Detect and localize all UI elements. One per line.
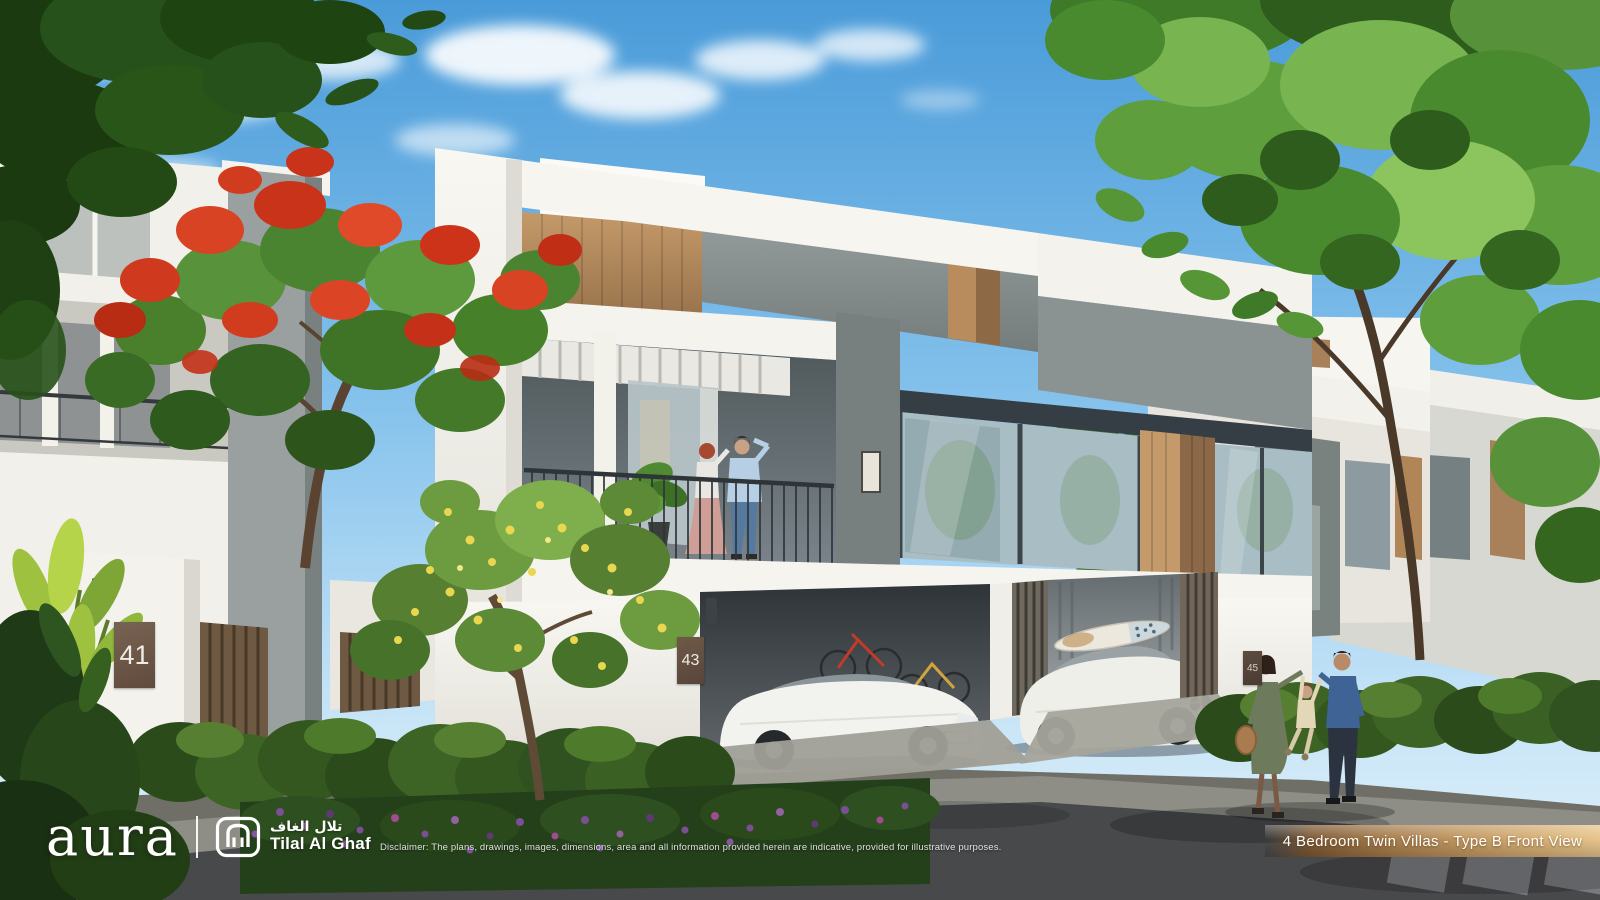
estate-name: تلال الغاف Tilal Al Ghaf — [270, 820, 371, 853]
house-number-41: 41 — [119, 640, 149, 671]
center-concrete-pillar — [836, 312, 900, 586]
tilal-al-ghaf-arch-icon — [215, 816, 261, 858]
brand-lockup: aura تلال الغاف Tilal Al Ghaf — [46, 816, 371, 858]
wood-accent-panel — [1140, 430, 1215, 578]
villa-render-canvas: 41 43 45 aura تلال الغاف Tilal Al Ghaf D… — [0, 0, 1600, 900]
wall-lamp-icon — [706, 598, 717, 624]
scene-illustration — [0, 0, 1600, 900]
house-number-plaque-43: 43 — [677, 637, 704, 684]
house-number-plaque-45: 45 — [1243, 651, 1262, 685]
brand-divider — [196, 816, 198, 858]
wall-art — [862, 452, 880, 492]
estate-name-english: Tilal Al Ghaf — [270, 835, 371, 853]
house-number-plaque-41: 41 — [114, 622, 155, 688]
caption-ribbon: 4 Bedroom Twin Villas - Type B Front Vie… — [1265, 825, 1600, 857]
aura-wordmark: aura — [46, 818, 179, 857]
house-number-45: 45 — [1247, 663, 1258, 674]
house-number-43: 43 — [682, 652, 700, 670]
disclaimer-text: Disclaimer: The plans, drawings, images,… — [380, 842, 1001, 853]
estate-logo: تلال الغاف Tilal Al Ghaf — [215, 816, 371, 858]
caption-ribbon-label: 4 Bedroom Twin Villas - Type B Front Vie… — [1283, 833, 1583, 850]
